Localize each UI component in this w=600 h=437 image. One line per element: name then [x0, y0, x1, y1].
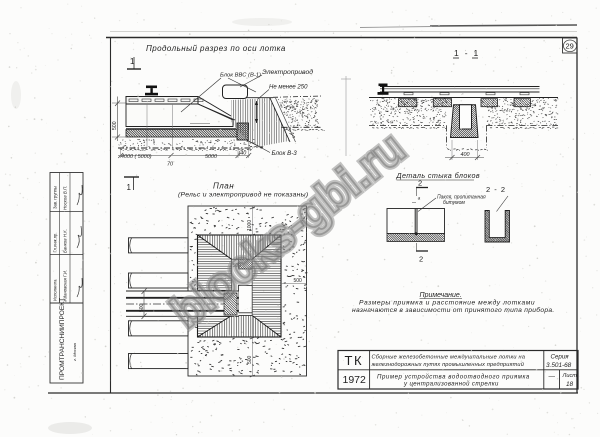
svg-text:500: 500 [247, 355, 253, 364]
svg-text:План: План [213, 182, 234, 191]
svg-text:ТК: ТК [345, 353, 364, 368]
svg-text:1: 1 [127, 183, 132, 192]
svg-text:г. Москва: г. Москва [72, 342, 77, 361]
svg-text:Электропривод: Электропривод [262, 68, 313, 76]
svg-text:500: 500 [112, 121, 118, 130]
svg-text:Пример устройства водоотводног: Пример устройства водоотводного приямка [377, 374, 530, 381]
svg-text:1972: 1972 [343, 374, 367, 386]
svg-text:3.501-68: 3.501-68 [546, 362, 572, 369]
svg-text:2: 2 [419, 255, 423, 264]
svg-text:Не менее 250: Не менее 250 [269, 85, 308, 91]
svg-text:Блок ВВС (В-1): Блок ВВС (В-1) [220, 73, 261, 79]
svg-text:500: 500 [139, 303, 145, 312]
svg-text:(40: (40 [239, 151, 247, 157]
svg-text:18: 18 [566, 381, 574, 388]
svg-text:29: 29 [566, 42, 574, 51]
svg-text:назначаются в зависимости от п: назначаются в зависимости от принятого т… [352, 306, 555, 314]
svg-text:Блок В-3: Блок В-3 [272, 150, 298, 157]
svg-text:—: — [549, 374, 556, 381]
svg-text:Лист: Лист [562, 373, 578, 379]
svg-text:Сборные железобетонные междушп: Сборные железобетонные междушпальные лот… [372, 355, 526, 361]
svg-text:ПРОМТРАНСНИИПРОЕКТ: ПРОМТРАНСНИИПРОЕКТ [59, 298, 66, 380]
svg-text:Деталь стыка блоков: Деталь стыка блоков [396, 171, 481, 180]
svg-text:Серия: Серия [551, 354, 570, 361]
svg-text:Гл.инж.пр.: Гл.инж.пр. [53, 232, 58, 252]
svg-text:Примечание.: Примечание. [420, 292, 462, 299]
svg-text:400: 400 [461, 152, 470, 158]
svg-text:70: 70 [167, 162, 173, 168]
svg-text:Банков Н.К.: Банков Н.К. [63, 229, 68, 253]
svg-text:Размеры приямка и расстояние м: Размеры приямка и расстояние между лотка… [359, 299, 535, 307]
svg-text:железнодорожных путях промышле: железнодорожных путях промышленных предп… [371, 361, 524, 368]
svg-text:2: 2 [418, 179, 422, 188]
svg-text:2 - 2: 2 - 2 [486, 185, 506, 194]
svg-text:Исполнила: Исполнила [53, 279, 58, 301]
svg-text:500: 500 [294, 278, 303, 284]
svg-text:Зав. группы: Зав. группы [53, 186, 58, 209]
svg-text:4000 ( 5000): 4000 ( 5000) [121, 154, 152, 160]
svg-text:а: а [418, 196, 421, 201]
svg-text:Продольный разрез по оси лотка: Продольный разрез по оси лотка [146, 44, 286, 53]
svg-text:битумом: битумом [443, 200, 465, 206]
svg-text:1 - 1: 1 - 1 [454, 48, 480, 58]
svg-text:у централизованной стрелки: у централизованной стрелки [403, 381, 499, 388]
svg-text:5000: 5000 [205, 154, 217, 160]
svg-text:Носков В.П.: Носков В.П. [63, 186, 68, 210]
